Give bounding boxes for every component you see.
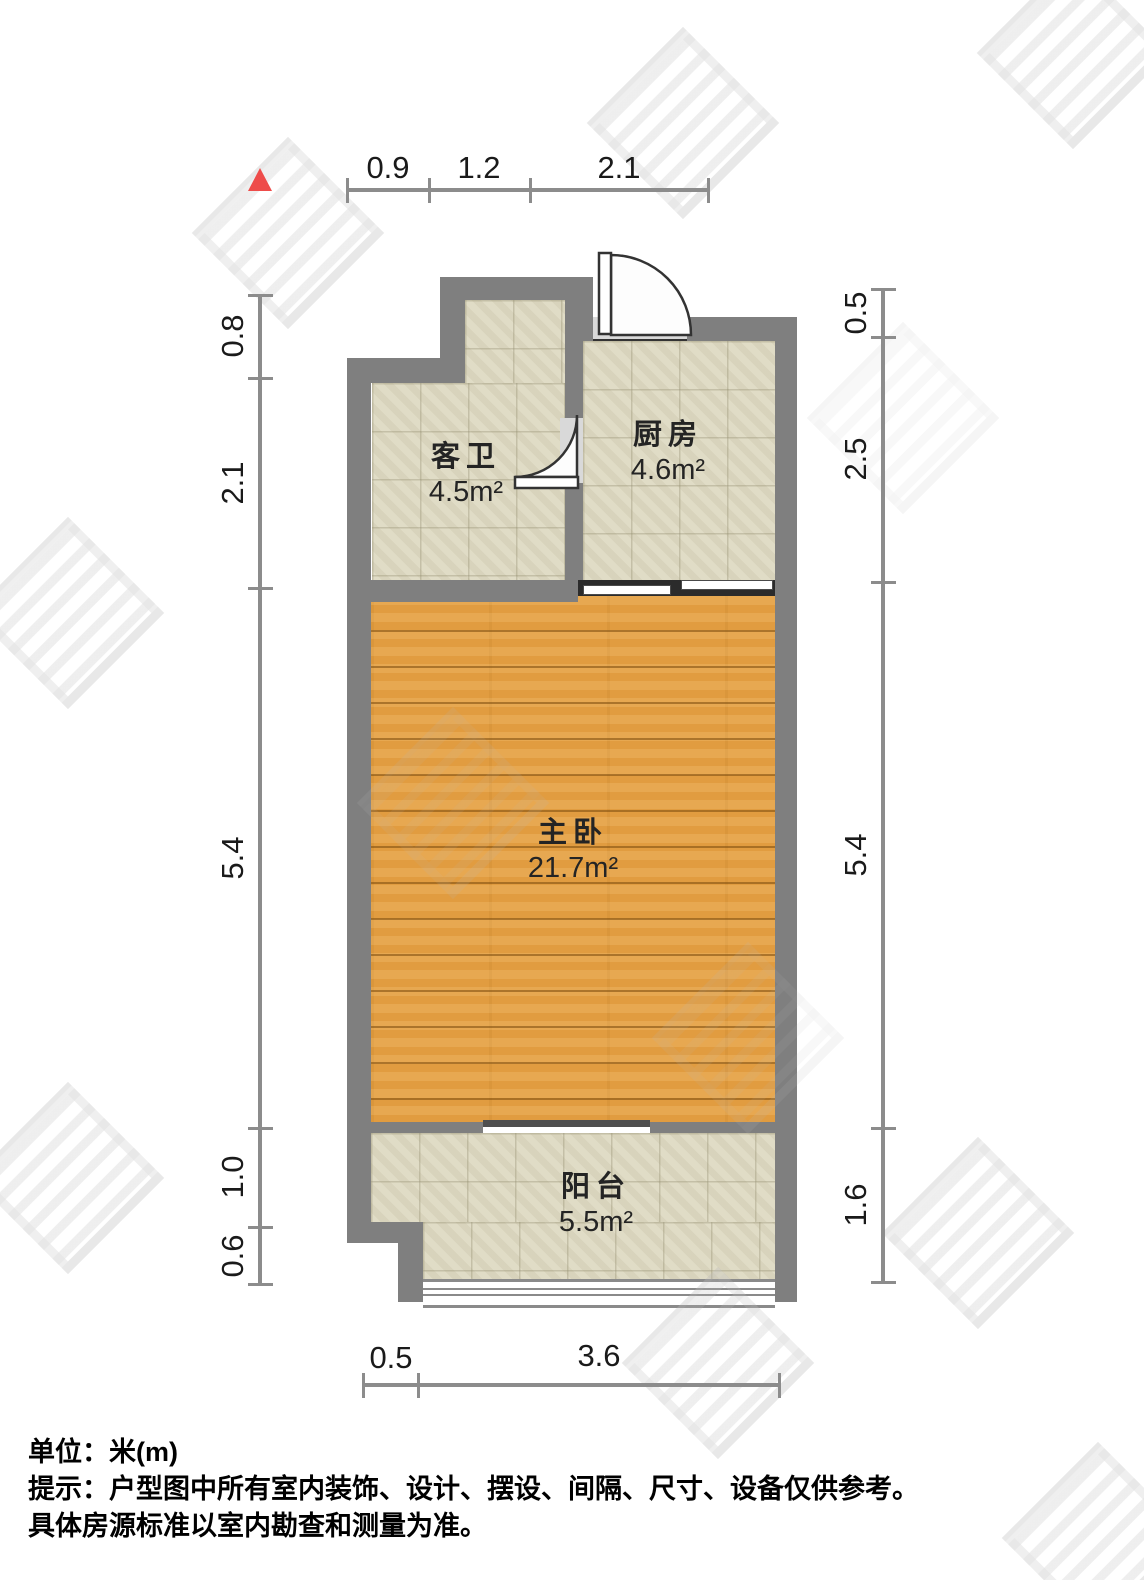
dim-tick [417, 1373, 420, 1398]
dim-label-top-2: 1.2 [457, 150, 500, 186]
dim-tick [428, 178, 431, 203]
floorplan-page: 客卫 4.5m² 厨房 4.6m² 主卧 21.7m² 阳台 5.5m² 0.9… [0, 0, 1144, 1580]
dim-line-bottom [363, 1383, 780, 1387]
watermark-icon [192, 137, 384, 329]
dim-label-left-3: 5.4 [215, 836, 251, 879]
dim-label-bottom-2: 3.6 [577, 1338, 620, 1374]
kitchen-sliding-door-panel-left [583, 585, 671, 595]
dim-tick [248, 377, 273, 380]
dim-tick [871, 336, 896, 339]
dim-tick [871, 288, 896, 291]
dim-label-right-1: 0.5 [838, 291, 874, 334]
wall-bathroom-bottom [347, 580, 578, 602]
watermark-icon [882, 1137, 1074, 1329]
balcony-area: 5.5m² [486, 1205, 706, 1240]
entrance-door-swing-arc [611, 255, 691, 335]
wall-bathroom-tower-left [440, 277, 465, 383]
footer-note-line1: 提示：户型图中所有室内装饰、设计、摆设、间隔、尺寸、设备仅供参考。 [28, 1471, 919, 1508]
dim-label-right-3: 5.4 [838, 833, 874, 876]
dim-label-left-2: 2.1 [215, 461, 251, 504]
bedroom-area: 21.7m² [463, 851, 683, 886]
dim-label-left-5: 0.6 [215, 1234, 251, 1277]
bathroom-floor-upper [465, 300, 565, 383]
footer-unit: 单位：米(m) [28, 1434, 919, 1471]
room-label-balcony: 阳台 5.5m² [486, 1170, 706, 1240]
dim-tick [248, 587, 273, 590]
dim-tick [362, 1373, 365, 1398]
dim-label-right-4: 1.6 [838, 1183, 874, 1226]
dim-line-right [881, 289, 885, 1283]
kitchen-area: 4.6m² [558, 453, 778, 488]
wall-right-outer [775, 317, 797, 1302]
dim-label-right-2: 2.5 [838, 437, 874, 480]
kitchen-sliding-door-panel-right [681, 580, 773, 590]
dim-tick [346, 178, 349, 203]
wall-left-lower [398, 1243, 423, 1302]
dim-tick [707, 178, 710, 203]
entrance-door [580, 245, 705, 345]
watermark-icon [0, 1082, 164, 1274]
dim-tick [778, 1373, 781, 1398]
kitchen-name: 厨房 [558, 418, 778, 453]
wall-balcony-left-segment [371, 1122, 483, 1133]
dim-tick [871, 1127, 896, 1130]
bedroom-balcony-opening-edge [483, 1120, 650, 1127]
dim-tick [871, 581, 896, 584]
room-label-kitchen: 厨房 4.6m² [558, 418, 778, 488]
wall-left-step [347, 1222, 423, 1243]
watermark-icon [0, 517, 164, 709]
dim-label-bottom-1: 0.5 [369, 1340, 412, 1376]
dim-label-left-1: 0.8 [215, 314, 251, 357]
bedroom-name: 主卧 [463, 816, 683, 851]
north-arrow-icon [248, 168, 272, 191]
dim-tick [529, 178, 532, 203]
dim-line-top [347, 188, 709, 192]
dim-line-left [258, 295, 262, 1285]
watermark-icon [1002, 1442, 1144, 1580]
dim-tick [871, 1281, 896, 1284]
dim-tick [248, 1283, 273, 1286]
dim-tick [248, 1127, 273, 1130]
watermark-icon [977, 0, 1144, 149]
dim-tick [248, 1226, 273, 1229]
balcony-name: 阳台 [486, 1170, 706, 1205]
watermark-icon [807, 322, 999, 514]
dim-tick [248, 294, 273, 297]
entrance-door-leaf [599, 253, 611, 334]
footer-notes: 单位：米(m) 提示：户型图中所有室内装饰、设计、摆设、间隔、尺寸、设备仅供参考… [28, 1434, 919, 1545]
footer-note-line2: 具体房源标准以室内勘查和测量为准。 [28, 1508, 919, 1545]
bathroom-name: 客卫 [356, 440, 576, 475]
room-label-bedroom: 主卧 21.7m² [463, 816, 683, 886]
bathroom-area: 4.5m² [356, 475, 576, 510]
dim-label-top-3: 2.1 [597, 150, 640, 186]
dim-label-left-4: 1.0 [215, 1155, 251, 1198]
room-label-bathroom: 客卫 4.5m² [356, 440, 576, 510]
dim-label-top-1: 0.9 [366, 150, 409, 186]
